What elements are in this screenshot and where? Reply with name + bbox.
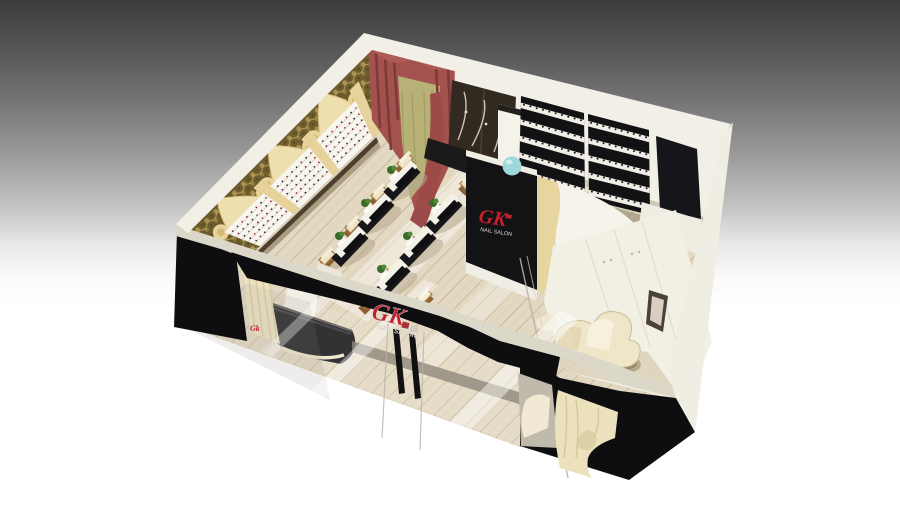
svg-text:Gk: Gk (250, 324, 260, 333)
